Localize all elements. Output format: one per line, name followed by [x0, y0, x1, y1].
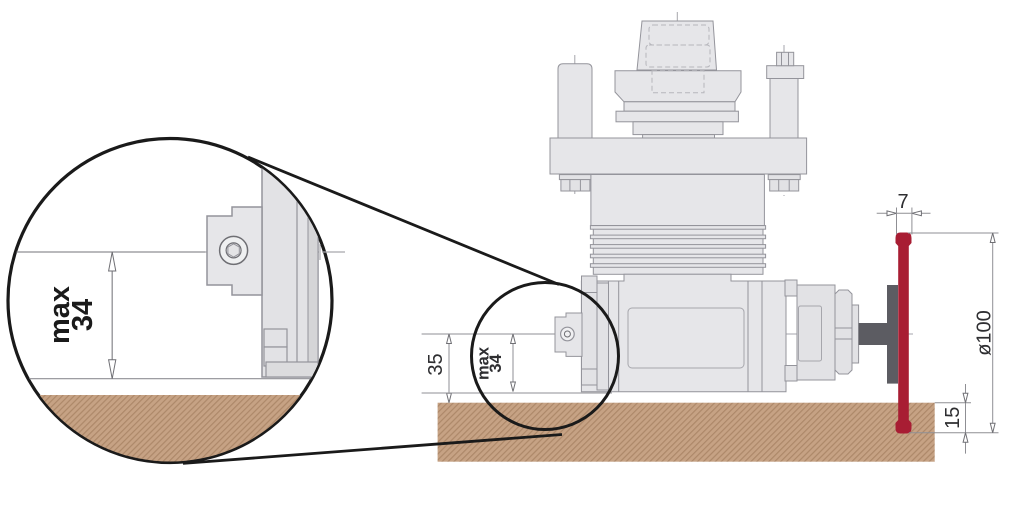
- svg-text:34: 34: [487, 354, 505, 373]
- svg-text:35: 35: [425, 353, 447, 375]
- svg-text:7: 7: [897, 191, 908, 213]
- svg-text:15: 15: [942, 407, 964, 429]
- svg-text:ø100: ø100: [974, 310, 996, 356]
- svg-text:34: 34: [67, 299, 99, 331]
